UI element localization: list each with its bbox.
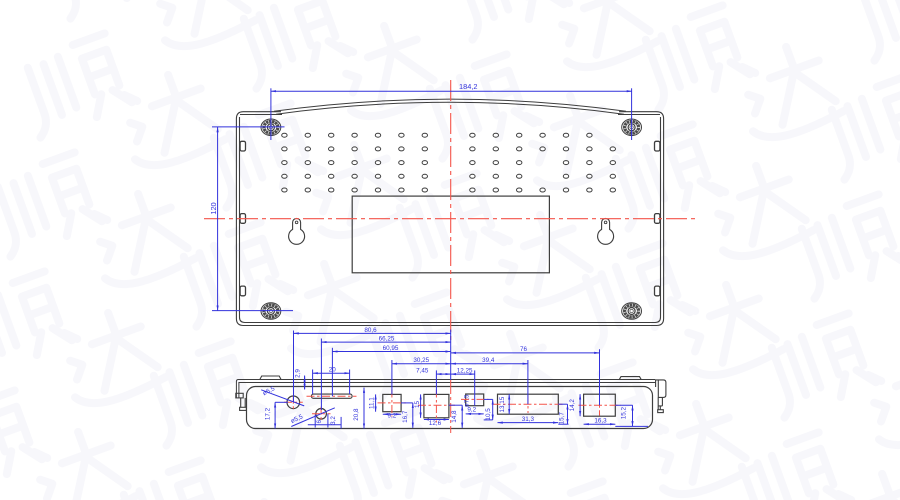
svg-text:66,25: 66,25 [379,335,395,342]
svg-text:6: 6 [316,420,323,424]
svg-text:9,2: 9,2 [388,412,397,419]
svg-text:30,25: 30,25 [413,357,429,364]
svg-text:15: 15 [414,401,421,409]
svg-text:14,8: 14,8 [451,410,458,423]
svg-text:60,95: 60,95 [383,345,399,352]
svg-text:3,2: 3,2 [330,416,337,425]
svg-text:13,15: 13,15 [499,396,506,412]
svg-text:76: 76 [520,346,528,353]
svg-text:2,9: 2,9 [294,369,301,378]
svg-text:16,7: 16,7 [402,410,409,423]
svg-text:120: 120 [209,202,218,214]
svg-text:10,5: 10,5 [485,408,492,421]
svg-text:16,3: 16,3 [594,418,607,425]
svg-text:20,8: 20,8 [353,408,360,421]
svg-text:20: 20 [329,367,337,374]
svg-text:11,1: 11,1 [369,397,376,409]
svg-text:15,7: 15,7 [559,412,566,425]
svg-text:17,2: 17,2 [265,407,272,420]
svg-text:12,25: 12,25 [457,368,473,375]
svg-text:7,45: 7,45 [416,368,429,375]
svg-text:31,3: 31,3 [522,416,535,423]
svg-text:ø7,5: ø7,5 [463,394,470,407]
svg-text:15,2: 15,2 [621,406,628,419]
svg-text:12,6: 12,6 [429,420,442,427]
svg-text:39,4: 39,4 [482,357,495,364]
svg-text:14,2: 14,2 [569,399,576,412]
svg-text:184,2: 184,2 [459,82,478,91]
svg-text:80,6: 80,6 [364,327,377,334]
